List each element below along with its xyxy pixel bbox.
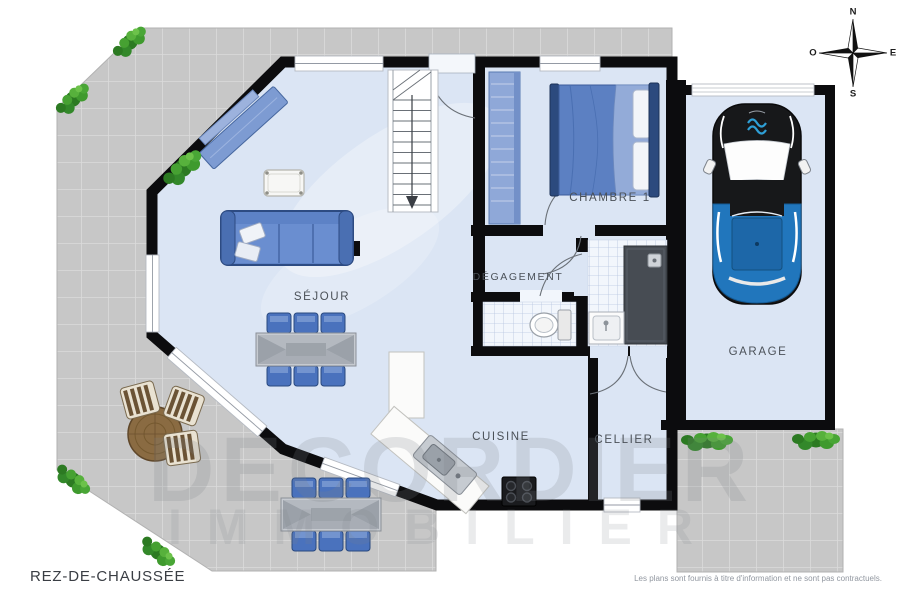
compass-north-label: N [850,7,857,18]
sofa [221,211,353,265]
bathroom-sink [589,312,624,344]
coffee-table [264,170,304,196]
garage-door [692,84,814,96]
disclaimer-text: Les plans sont fournis à titre d'informa… [634,574,882,583]
compass-west-label: O [809,48,816,59]
outdoor-dining-set [281,478,381,551]
compass-rose-icon [819,19,887,87]
page-title: REZ-DE-CHAUSSÉE [30,568,185,585]
compass-east-label: E [890,48,896,59]
wc-room [483,302,576,346]
car [703,104,812,304]
bathroom [588,240,667,346]
compass-south-label: S [850,89,856,100]
wardrobe [489,72,520,224]
room-label-sejour: SÉJOUR [294,291,350,303]
floor-plan: DECORDIER IMMOBILIER SÉJOUR CHAMBRE 1 DÉ… [0,0,900,600]
car-windshield [724,141,790,183]
toilet [530,310,571,340]
room-label-garage: GARAGE [729,346,788,358]
bed [550,83,659,197]
room-label-cuisine: CUISINE [472,431,530,443]
room-label-degagement: DÉGAGEMENT [473,271,564,283]
patio-chair [163,430,201,466]
cooktop [502,477,536,506]
terrace-right [677,429,843,572]
floor-plan-graphic [0,0,900,600]
stairs [388,70,438,212]
shower [624,246,667,344]
room-label-cellier: CELLIER [594,434,653,446]
indoor-dining-set [256,313,356,386]
room-label-chambre1: CHAMBRE 1 [569,192,651,204]
